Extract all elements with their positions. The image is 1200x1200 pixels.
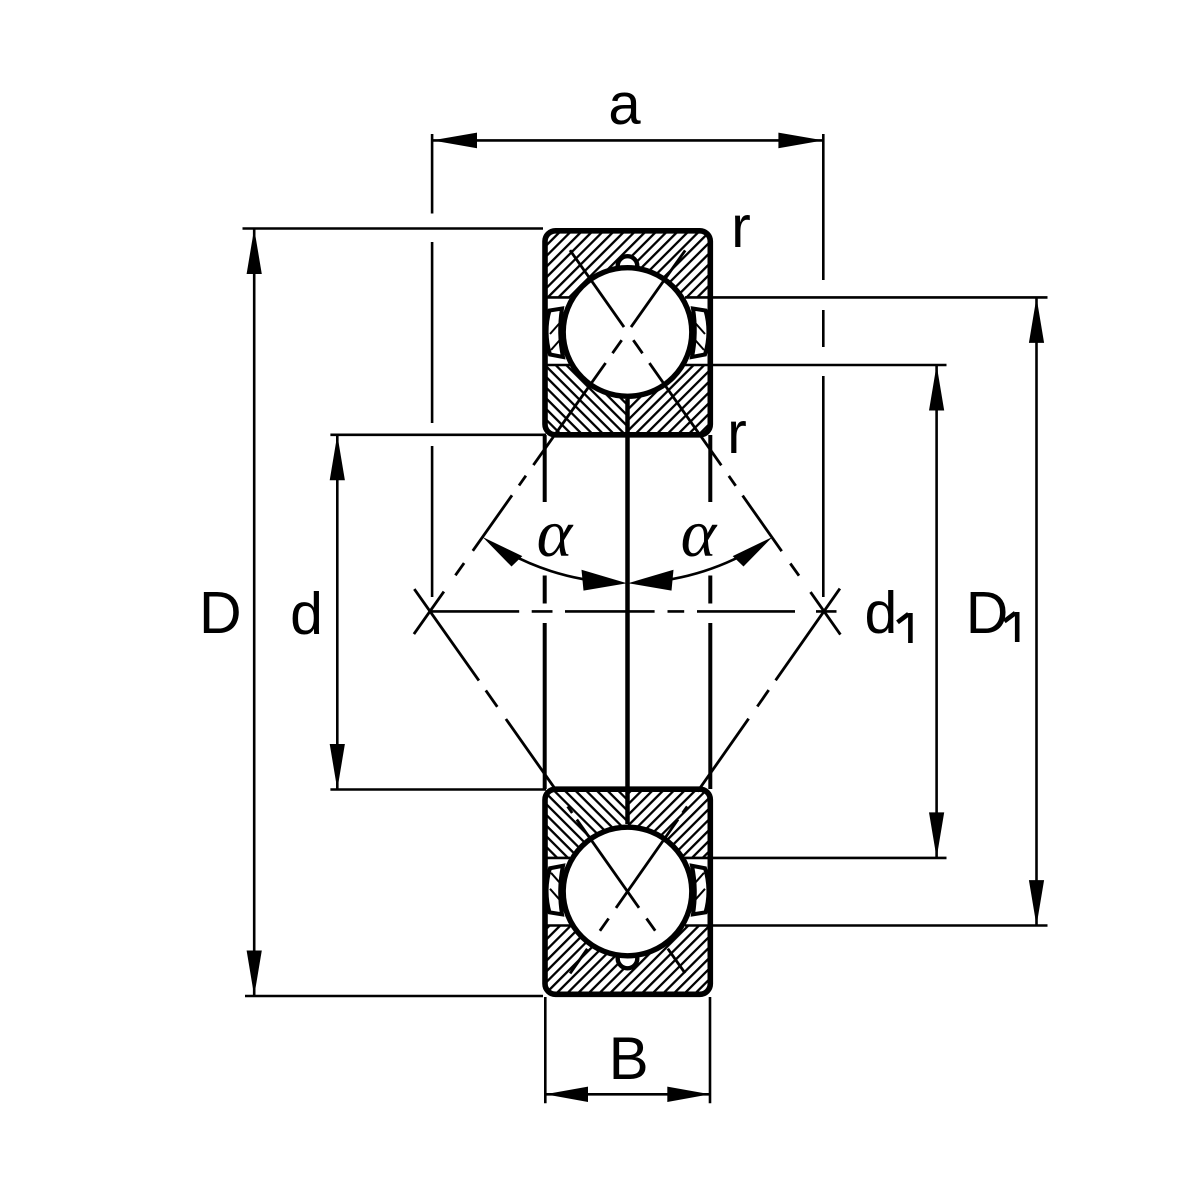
svg-text:D: D: [966, 580, 1009, 646]
svg-text:d: d: [290, 581, 323, 647]
svg-text:α: α: [681, 495, 718, 571]
svg-text:a: a: [608, 72, 641, 137]
svg-text:α: α: [537, 495, 574, 571]
svg-text:B: B: [609, 1025, 649, 1092]
svg-text:r: r: [731, 194, 751, 260]
svg-text:D: D: [199, 580, 242, 646]
svg-text:d: d: [864, 580, 897, 646]
svg-text:r: r: [727, 400, 747, 466]
